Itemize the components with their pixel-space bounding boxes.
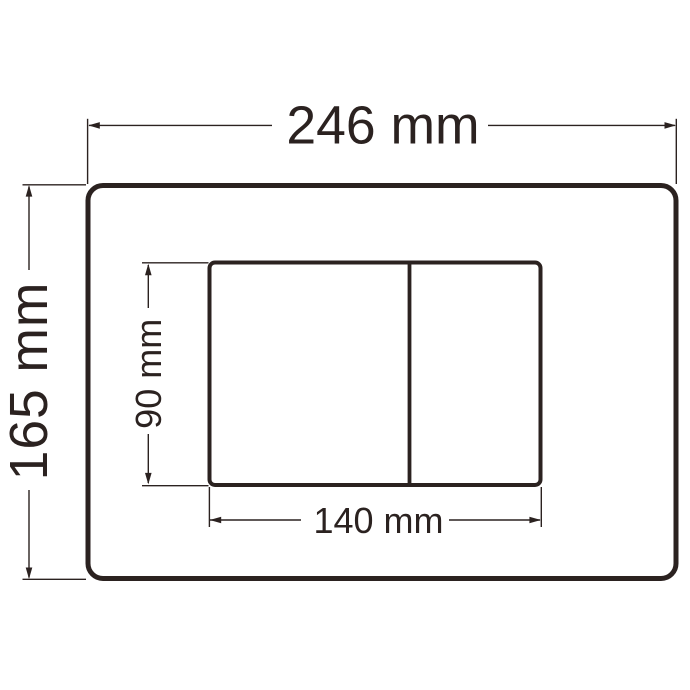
svg-text:90 mm: 90 mm <box>128 319 169 429</box>
svg-text:165 mm: 165 mm <box>0 282 59 481</box>
svg-text:140 mm: 140 mm <box>313 500 443 541</box>
svg-text:246 mm: 246 mm <box>286 97 479 156</box>
